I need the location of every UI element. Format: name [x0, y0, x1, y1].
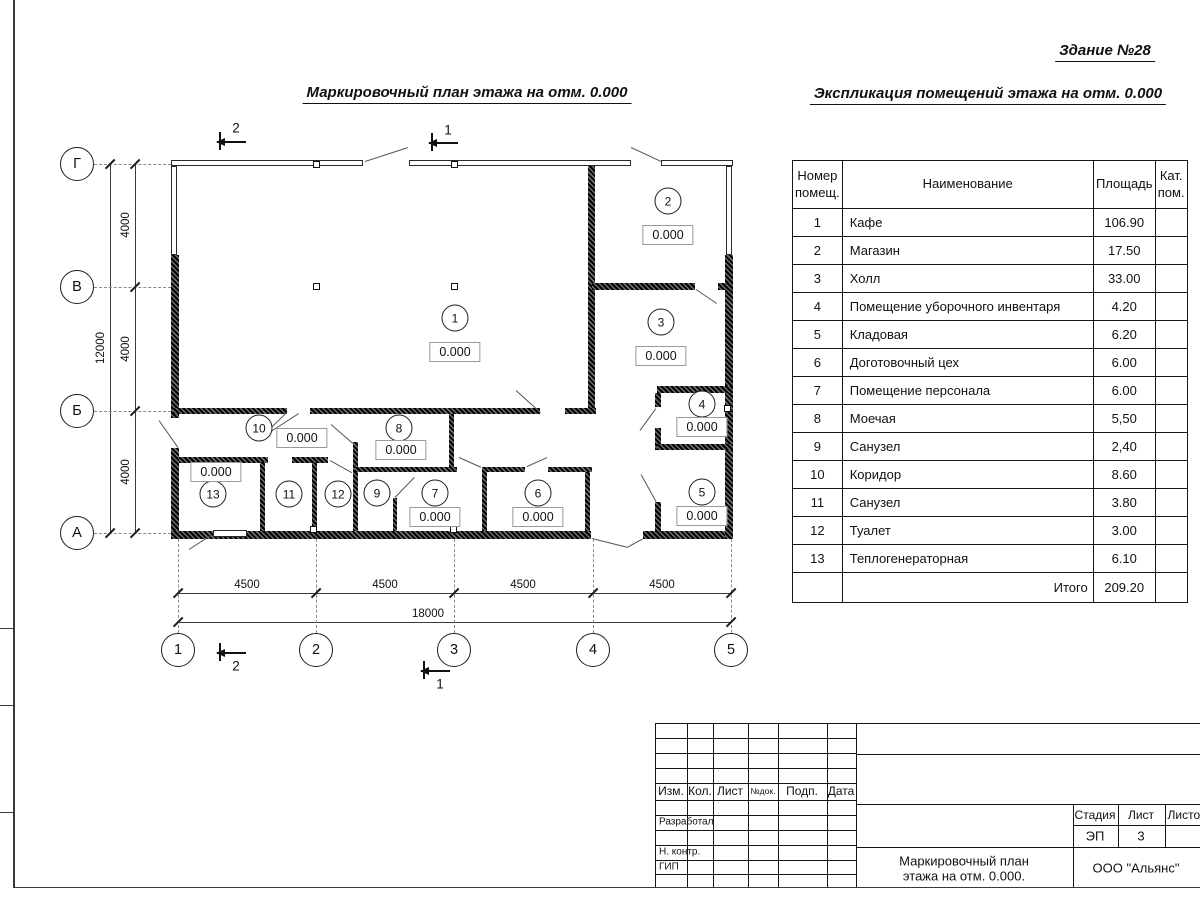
company-name: ООО "Альянс" [1093, 861, 1180, 876]
door-leaf-line [330, 460, 352, 473]
room-number-bubble: 2 [655, 188, 682, 215]
wall [449, 414, 454, 472]
stage-header: Стадия [1075, 808, 1116, 822]
room-number-bubble: 5 [689, 479, 716, 506]
door-leaf-line [331, 424, 354, 444]
wall [718, 283, 733, 290]
axis-bubble: Г [60, 147, 94, 181]
dimension-label: 4500 [647, 579, 677, 591]
wall [171, 255, 179, 418]
title-block-line [655, 723, 1200, 724]
dimension-label-total: 18000 [410, 608, 446, 620]
wall [312, 463, 317, 531]
column-marker [313, 283, 320, 290]
title-block-header: Кол. [688, 784, 712, 798]
door-leaf-line [627, 538, 643, 548]
section-arrow-icon [420, 667, 429, 675]
door-leaf-line [395, 477, 415, 498]
dimension-label: 4500 [508, 579, 538, 591]
dimension-label: 4500 [232, 579, 262, 591]
room-number-bubble: 11 [276, 481, 303, 508]
axis-bubble: Б [60, 394, 94, 428]
door-leaf-line [592, 538, 627, 548]
title-block-line [655, 738, 856, 739]
title-block-line [856, 754, 1200, 755]
stage-header: Листов [1168, 808, 1200, 822]
door-leaf-line [365, 147, 408, 162]
door-leaf-line [696, 289, 717, 304]
room-number-bubble: 3 [648, 309, 675, 336]
title-block-line [655, 783, 856, 784]
wall [393, 498, 397, 531]
axis-bubble: 2 [299, 633, 333, 667]
wall [353, 442, 358, 531]
room-elevation-label: 0.000 [429, 342, 480, 362]
door-leaf-line [640, 408, 657, 430]
column-marker [313, 161, 320, 168]
title-block-line [655, 768, 856, 769]
axis-line-vertical [454, 539, 455, 633]
room-number-bubble: 4 [689, 391, 716, 418]
wall [655, 502, 661, 531]
sheet-frame-left [13, 0, 15, 888]
window-band [171, 160, 363, 166]
sheet-frame-bottom [13, 887, 1200, 889]
frame-tick [0, 812, 13, 813]
title-block-line [655, 800, 856, 801]
title-block-header: Дата [828, 784, 855, 798]
wall [643, 531, 733, 539]
axis-bubble: А [60, 516, 94, 550]
dimension-label: 4000 [120, 212, 132, 238]
room-elevation-label: 0.000 [409, 507, 460, 527]
axis-bubble: 4 [576, 633, 610, 667]
title-block-header: Подп. [786, 784, 818, 798]
title-block-line [713, 723, 714, 888]
axis-bubble: 5 [714, 633, 748, 667]
title-block-line [655, 723, 656, 888]
dim-line-12000 [110, 164, 111, 534]
room-elevation-label: 0.000 [512, 507, 563, 527]
wall [565, 408, 596, 414]
title-block-line [655, 860, 856, 861]
section-mark-label: 2 [232, 121, 240, 136]
window-band [726, 166, 732, 255]
door-leaf-line [641, 474, 657, 502]
wall [657, 444, 733, 450]
room-elevation-label: 0.000 [635, 346, 686, 366]
title-block-header: Изм. [658, 784, 684, 798]
title-block-line [778, 723, 779, 888]
axis-line-vertical [593, 539, 594, 633]
wall [487, 467, 525, 472]
dimension-label: 4500 [370, 579, 400, 591]
wall [585, 472, 590, 531]
column-marker [724, 405, 731, 412]
title-block-role: Разработал [659, 817, 713, 828]
column-marker [450, 526, 457, 533]
column-marker [310, 526, 317, 533]
frame-tick [0, 628, 13, 629]
title-block-line [1118, 804, 1119, 848]
title-block-line [655, 874, 856, 875]
wall [310, 408, 540, 414]
dimension-label: 4000 [120, 459, 132, 485]
window-band [661, 160, 733, 166]
door-leaf-line [159, 420, 179, 448]
wall [655, 393, 661, 407]
drawing-sheet: { "building_label": "Здание №28", "plan_… [0, 0, 1200, 900]
wall [292, 457, 328, 463]
window-band [171, 166, 177, 255]
dimension-label: 4000 [120, 336, 132, 362]
axis-bubble: 3 [437, 633, 471, 667]
title-block-header: Лист [717, 784, 743, 798]
dim-line-4000 [135, 164, 136, 534]
section-arrow-icon [216, 138, 225, 146]
wall [260, 462, 265, 531]
window-band [213, 530, 247, 537]
section-arrow-icon [428, 139, 437, 147]
title-block-line [856, 804, 1200, 805]
dim-line-18000 [178, 622, 732, 623]
title-block-line [856, 847, 1200, 848]
title-block-line [856, 723, 857, 888]
axis-line-vertical [316, 539, 317, 633]
room-number-bubble: 13 [200, 481, 227, 508]
wall [355, 467, 457, 472]
wall [592, 283, 695, 290]
room-number-bubble: 6 [525, 480, 552, 507]
title-block-line [1073, 825, 1200, 826]
frame-tick [0, 705, 13, 706]
wall [173, 408, 287, 414]
title-block-line [1165, 804, 1166, 848]
wall [171, 448, 179, 533]
wall [725, 255, 733, 539]
room-number-bubble: 1 [442, 305, 469, 332]
title-block-role: ГИП [659, 862, 679, 873]
stage-value: ЭП [1086, 829, 1105, 844]
section-arrow-icon [216, 649, 225, 657]
column-marker [451, 161, 458, 168]
section-mark-label: 2 [232, 659, 240, 674]
title-block-line [655, 753, 856, 754]
title-block-line [687, 723, 688, 888]
room-number-bubble: 8 [386, 415, 413, 442]
room-elevation-label: 0.000 [676, 417, 727, 437]
room-elevation-label: 0.000 [676, 506, 727, 526]
dimension-label-total: 12000 [95, 332, 107, 364]
axis-bubble: В [60, 270, 94, 304]
stage-header: Лист [1128, 808, 1154, 822]
room-elevation-label: 0.000 [375, 440, 426, 460]
window-band [409, 160, 631, 166]
title-block-role: Н. контр. [659, 847, 700, 858]
title-block-line [827, 723, 828, 888]
room-number-bubble: 7 [422, 480, 449, 507]
room-elevation-label: 0.000 [190, 462, 241, 482]
room-number-bubble: 9 [364, 480, 391, 507]
doc-title-line: Маркировочный план [899, 854, 1029, 869]
sheet-number: 3 [1137, 829, 1144, 844]
room-elevation-label: 0.000 [642, 225, 693, 245]
door-leaf-line [631, 147, 661, 162]
wall [482, 467, 487, 531]
axis-bubble: 1 [161, 633, 195, 667]
section-mark-label: 1 [436, 677, 444, 692]
title-block-line [748, 723, 749, 888]
column-marker [451, 283, 458, 290]
room-number-bubble: 10 [246, 415, 273, 442]
door-leaf-line [459, 457, 481, 468]
title-block-header: №док. [751, 786, 776, 796]
section-mark-label: 1 [444, 123, 452, 138]
title-block: Изм.Кол.Лист№док.Подп.ДатаРазработалН. к… [655, 723, 1200, 888]
title-block-line [655, 830, 856, 831]
doc-title-line: этажа на отм. 0.000. [903, 869, 1025, 884]
room-elevation-label: 0.000 [276, 428, 327, 448]
room-number-bubble: 12 [325, 481, 352, 508]
door-leaf-line [527, 457, 548, 467]
